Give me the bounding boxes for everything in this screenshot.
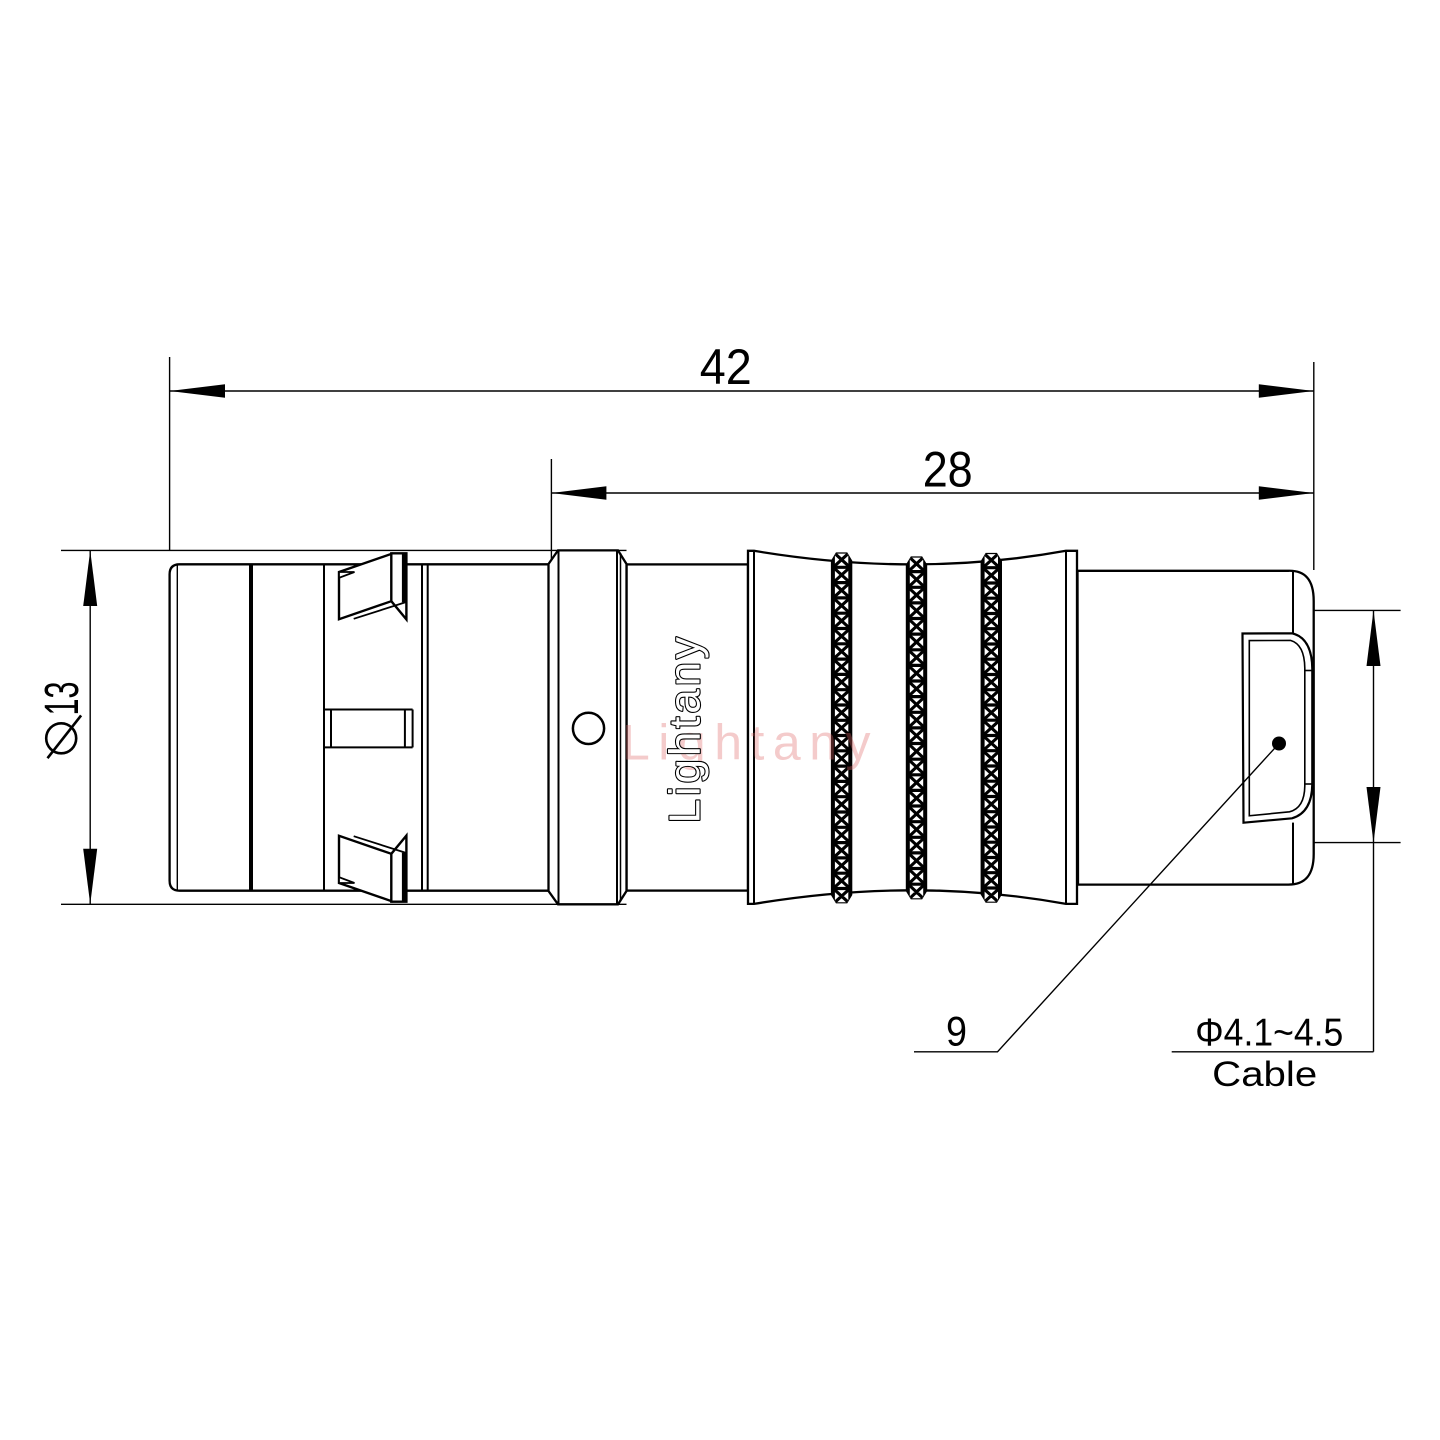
svg-text:Cable: Cable bbox=[1212, 1055, 1317, 1094]
svg-text:28: 28 bbox=[923, 441, 973, 497]
svg-text:9: 9 bbox=[946, 1008, 967, 1055]
svg-text:Lightany: Lightany bbox=[661, 632, 710, 824]
svg-text:42: 42 bbox=[700, 339, 752, 395]
svg-text:13: 13 bbox=[36, 682, 89, 716]
svg-text:Φ4.1~4.5: Φ4.1~4.5 bbox=[1195, 1012, 1343, 1055]
